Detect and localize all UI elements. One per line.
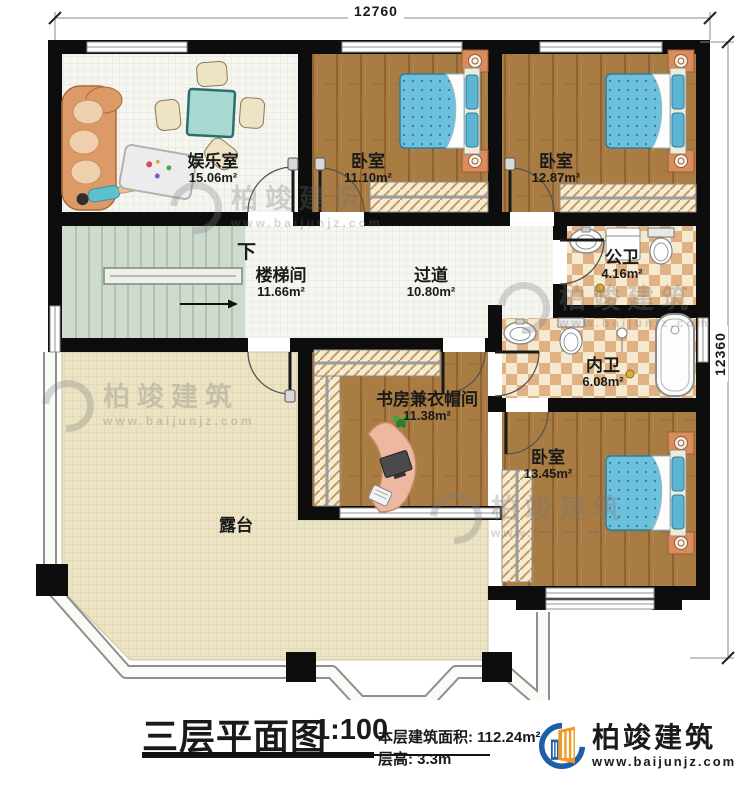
staircase xyxy=(62,226,245,338)
brand-logo-icon xyxy=(538,720,586,772)
toilet-icon xyxy=(558,318,584,354)
brand-block: 柏竣建筑 www.baijunjz.com xyxy=(538,720,736,772)
floor-height-line: 层高: 3.3m xyxy=(378,748,451,769)
washer-icon xyxy=(606,228,640,260)
stair-direction-label: 下 xyxy=(237,237,256,264)
dimension-top: 12760 xyxy=(348,3,404,19)
floor-plan-page: 柏竣建筑 www.baijunjz.com 柏竣建筑 www.baijunjz.… xyxy=(0,0,750,787)
title-underline xyxy=(142,752,374,758)
floor-plan-graphic xyxy=(0,0,750,700)
floor-height-value: 3.3m xyxy=(417,751,451,768)
terrace-column xyxy=(286,652,316,682)
floor-area-line: 本层建筑面积: 112.24m² xyxy=(378,726,541,747)
floor-area-value: 112.24m² xyxy=(477,729,540,746)
terrace-column xyxy=(36,564,68,596)
dimension-right: 12360 xyxy=(712,326,728,382)
floor-drain-icon xyxy=(596,284,604,292)
floor-height-label: 层高: xyxy=(378,751,413,768)
brand-website: www.baijunjz.com xyxy=(592,754,736,769)
toilet-icon xyxy=(648,228,674,264)
floor-drain-icon xyxy=(626,370,634,378)
brand-name: 柏竣建筑 xyxy=(592,723,736,752)
floor-area-label: 本层建筑面积: xyxy=(378,729,473,746)
bathtub-icon xyxy=(656,314,694,396)
terrace-column xyxy=(482,652,512,682)
